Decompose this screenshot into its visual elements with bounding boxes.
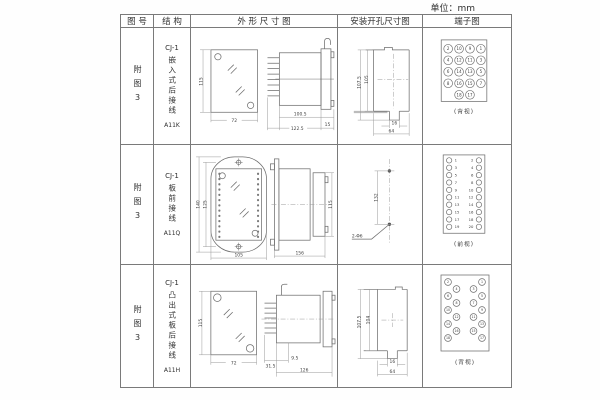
figure-number-r2: 附图3 [133,183,141,226]
svg-text:4: 4 [455,287,457,291]
install-cell-r1: 107.5 105 16 64 [338,28,423,145]
svg-text:17: 17 [455,218,460,222]
svg-text:2: 2 [447,280,449,284]
svg-text:6: 6 [471,174,474,178]
outline-drawing-a11k: 115 72 100.5 15 122.5 [191,28,337,144]
svg-text:9: 9 [469,46,472,51]
svg-text:15: 15 [455,210,460,214]
figure-number-r1: 附图3 [133,65,141,108]
col-header-structure: 结 构 [154,15,191,28]
dim-side-height: 115 [328,200,334,209]
svg-text:9: 9 [455,188,458,192]
svg-text:11: 11 [455,196,460,200]
dim-height: 115 [198,319,204,328]
svg-text:16: 16 [454,329,458,333]
svg-text:19: 19 [455,225,460,229]
svg-text:7: 7 [472,301,474,305]
svg-text:11: 11 [471,315,475,319]
svg-text:5: 5 [480,69,483,74]
svg-text:15: 15 [471,329,475,333]
terminal-circles: 210914121136141358161571817 [444,44,485,99]
svg-text:14: 14 [457,69,463,74]
svg-text:3: 3 [480,58,483,63]
dim-flange: 15 [325,122,331,128]
front-dimension-lines [200,50,258,122]
outline-drawing-a11q: 140 125 105 156 115 [191,145,337,264]
svg-text:12: 12 [469,196,474,200]
model-label-r3: A11H [164,367,180,374]
side-view [264,284,335,347]
svg-text:8: 8 [471,181,474,185]
svg-text:9: 9 [481,308,483,312]
svg-text:5: 5 [455,174,458,178]
cutout-outline [366,47,409,120]
dim-v-inner: 105 [364,75,370,84]
col-header-fig-no: 图 号 [121,15,154,28]
side-view [267,38,333,109]
structure-cell-r3: CJ-1 凸出式板后接线 A11H [154,265,191,387]
svg-text:13: 13 [467,69,473,74]
svg-text:10: 10 [469,188,474,192]
svg-text:1: 1 [481,280,483,284]
svg-text:1: 1 [455,159,458,163]
dim-v-outer: 107.5 [357,76,363,89]
centerlines [381,313,403,327]
svg-text:13: 13 [455,203,460,207]
terminal-circles: 1357911131517192468101214161820 [446,158,481,230]
dim-hole-spacing: 132 [374,193,380,202]
dim-pins: 31.5 [265,364,275,370]
svg-text:10: 10 [457,46,463,51]
figure-number-cell-r2: 附图3 [121,145,154,265]
document-page: 单位：mm 图 号 结 构 外 形 尺 寸 图 安装开孔尺寸图 端子图 附图3 … [0,0,600,400]
model-label-r1: A11K [164,122,180,129]
terminal-cell-r1: 210914121136141358161571817 (背视) [423,28,511,145]
svg-text:15: 15 [467,81,473,86]
svg-text:8: 8 [447,81,450,86]
svg-text:7: 7 [455,181,458,185]
svg-text:14: 14 [469,203,474,207]
series-label-r3: CJ-1 [165,279,179,287]
terminal-diagram-a11k: 210914121136141358161571817 (背视) [423,28,511,144]
dim-width: 72 [231,361,237,367]
dim-height: 115 [199,77,205,86]
dim-step: 9.5 [291,356,298,362]
svg-text:5: 5 [481,294,483,298]
dim-h-inner: 125 [202,200,208,209]
figure-number-cell-r1: 附图3 [121,28,154,145]
svg-text:2: 2 [471,159,474,163]
svg-text:11: 11 [467,58,473,63]
front-view [211,50,258,112]
structure-label-r2: 板前接线 [168,184,176,224]
dim-slot: 16 [392,120,398,126]
series-label-r2: CJ-1 [165,172,179,180]
front-dimension-lines [199,291,257,364]
svg-text:4: 4 [447,58,450,63]
install-drawing-a11q: 132 2-Φ6 [338,145,422,264]
svg-text:3: 3 [455,166,458,170]
dim-width: 64 [389,129,395,135]
terminal-diagram-a11q: 1357911131517192468101214161820 (前视) [423,145,511,264]
install-dimension-lines [358,50,409,136]
svg-text:7: 7 [480,81,483,86]
drawing-table: 图 号 结 构 外 形 尺 寸 图 安装开孔尺寸图 端子图 附图3 CJ-1 嵌… [120,14,512,388]
dim-h-outer: 140 [195,200,201,209]
outline-drawing-a11h: 115 72 31.5 9.5 126 [191,265,337,387]
view-label: (背视) [455,358,475,366]
structure-cell-r1: CJ-1 嵌入式后接线 A11K [154,28,191,145]
install-dimension-lines [358,289,407,376]
svg-text:3: 3 [472,287,474,291]
svg-text:16: 16 [457,81,463,86]
structure-label-r1: 嵌入式后接线 [168,56,176,116]
svg-text:10: 10 [446,308,450,312]
svg-text:1: 1 [480,46,483,51]
front-view [211,157,267,252]
dim-length: 156 [295,251,304,257]
dim-v-outer: 107.5 [357,316,363,329]
svg-text:6: 6 [447,69,450,74]
view-label: (前视) [454,240,474,248]
dim-total-length: 122.5 [291,126,304,132]
dim-width: 64 [390,369,396,375]
svg-text:8: 8 [455,301,457,305]
view-label: (背视) [454,107,474,115]
figure-number-r3: 附图3 [133,305,141,348]
dim-slot: 16 [390,359,396,365]
svg-text:17: 17 [480,336,484,340]
svg-text:16: 16 [469,210,474,214]
svg-text:17: 17 [467,92,473,97]
structure-label-r3: 凸出式板后接线 [168,291,176,361]
hole-marks [352,169,391,239]
svg-text:13: 13 [480,322,484,326]
dim-v-inner: 104 [366,316,372,325]
col-header-terminal: 端子图 [423,15,511,28]
terminal-cell-r3: 261014184812163711151591317 (背视) [423,265,511,387]
col-header-outline: 外 形 尺 寸 图 [191,15,338,28]
svg-text:4: 4 [471,166,474,170]
dim-width: 72 [231,118,237,124]
series-label-r1: CJ-1 [165,44,179,52]
svg-text:18: 18 [469,218,474,222]
centerlines [378,54,409,108]
front-view [211,291,257,355]
outline-cell-r2: 140 125 105 156 115 [191,145,338,265]
svg-text:14: 14 [446,322,450,326]
hole-callout: 2-Φ6 [352,233,363,239]
col-header-install: 安装开孔尺寸图 [338,15,423,28]
dim-width: 105 [234,253,243,259]
outline-cell-r3: 115 72 31.5 9.5 126 [191,265,338,387]
svg-text:18: 18 [446,336,450,340]
install-cell-r3: 107.5 104 16 64 [338,265,423,387]
dim-length: 126 [300,367,309,373]
figure-number-cell-r3: 附图3 [121,265,154,387]
dim-body-length: 100.5 [294,112,307,118]
svg-text:20: 20 [469,225,474,229]
install-cell-r2: 132 2-Φ6 [338,145,423,265]
terminal-circles: 261014184812163711151591317 [445,279,486,342]
svg-text:6: 6 [447,294,449,298]
terminal-diagram-a11h: 261014184812163711151591317 (背视) [423,265,511,387]
svg-text:18: 18 [457,92,463,97]
structure-cell-r2: CJ-1 板前接线 A11Q [154,145,191,265]
svg-text:12: 12 [454,315,458,319]
install-drawing-a11h: 107.5 104 16 64 [338,265,422,387]
model-label-r2: A11Q [164,230,180,237]
svg-text:2: 2 [447,46,450,51]
terminal-cell-r2: 1357911131517192468101214161820 (前视) [423,145,511,265]
svg-text:12: 12 [457,58,463,63]
install-drawing-a11k: 107.5 105 16 64 [338,28,422,144]
outline-cell-r1: 115 72 100.5 15 122.5 [191,28,338,145]
